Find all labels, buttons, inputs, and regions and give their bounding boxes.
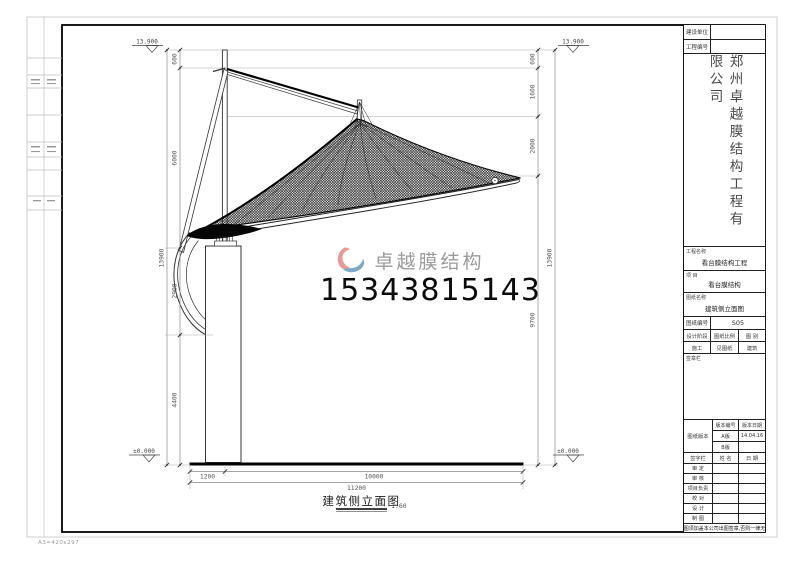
level-bottom-right: ±0.000 — [557, 448, 579, 455]
paper-size-note: A3=420x297 — [38, 540, 79, 546]
drawing-name-label: 图纸名称 — [686, 294, 706, 301]
company-name: 郑州卓越膜结构工程有限公司 — [705, 54, 745, 246]
binding-strip — [27, 17, 62, 537]
seal-label: 签章栏 — [686, 355, 701, 362]
drawing-name-cell: 图纸名称 建筑侧立面图 — [684, 293, 765, 317]
category-value: 建筑 — [739, 342, 765, 353]
version-b-date — [739, 442, 765, 452]
version-no-label: 版本编号 — [713, 420, 739, 431]
project-name-value: 看台膜结构工程 — [684, 257, 765, 267]
dim-2900: 2900 — [172, 283, 179, 298]
version-a: A版 — [713, 431, 739, 442]
drawing-no-value: S05 — [711, 317, 765, 329]
seal-cell: 签章栏 — [684, 354, 765, 420]
phone-number: 15343815143 — [320, 276, 498, 306]
name-label: 姓 名 — [713, 453, 739, 463]
level-bottom-left: ±0.000 — [133, 448, 155, 455]
brand-logo-icon — [333, 246, 369, 275]
sign-row: 审 定 — [684, 464, 765, 474]
sign-row-label: 制 图 — [684, 514, 713, 523]
version-date-label: 版本日期 — [739, 420, 765, 431]
item-value: 看台膜结构 — [684, 279, 765, 289]
sign-row-label: 审 定 — [684, 464, 713, 473]
project-name-label: 工程名称 — [686, 248, 706, 255]
level-top-right: 13.900 — [562, 39, 584, 46]
sign-table-header: 签字栏 姓 名 日 期 — [684, 453, 765, 464]
dim-11200: 11200 — [347, 485, 366, 492]
membrane-canopy — [202, 102, 521, 230]
dim-13900-right: 13900 — [547, 248, 554, 267]
sign-row-label: 设 计 — [684, 504, 713, 513]
item-label: 项 目 — [686, 272, 698, 279]
sign-row-label: 审 核 — [684, 474, 713, 483]
dim-1200: 1200 — [200, 474, 215, 481]
dim-6000: 6000 — [172, 150, 179, 165]
item-cell: 项 目 看台膜结构 — [684, 271, 765, 293]
binding-strip-marks — [31, 79, 56, 201]
scale-label: 图纸比例 — [711, 330, 739, 341]
sign-row: 审 核 — [684, 474, 765, 484]
drawing-title: 建筑侧立面图 — [323, 494, 401, 508]
project-no-label: 工程编号 — [684, 40, 711, 53]
stage-label: 设计阶段 — [684, 330, 711, 341]
drawing-sheet: 13.900 13.900 ±0.000 ±0.000 600 6000 290… — [0, 0, 800, 565]
dim-4400: 4400 — [172, 392, 179, 407]
sign-row: 校 对 — [684, 494, 765, 504]
drawing-scale: 1:60 — [391, 502, 407, 510]
version-table: 图纸版本 版本编号 版本日期 A版 14.04.16 B版 — [684, 420, 765, 453]
title-block: 建设单位 工程编号 郑州卓越膜结构工程有限公司 工程名称 看台膜结构工程 项 目… — [683, 25, 765, 532]
dim-2000: 2000 — [530, 138, 537, 153]
drawing-name-value: 建筑侧立面图 — [684, 303, 765, 313]
sign-row: 制 图 — [684, 514, 765, 524]
sign-row: 项目负责 — [684, 484, 765, 494]
category-label: 图 别 — [739, 330, 765, 341]
dim-1600: 1600 — [530, 84, 537, 99]
dim-10000: 10000 — [365, 474, 384, 481]
scale-value: 见图纸 — [711, 342, 739, 353]
dim-600-left: 600 — [172, 53, 179, 65]
dim-13900-left: 13900 — [159, 248, 166, 267]
date-label: 日 期 — [739, 453, 765, 463]
construction-unit-label: 建设单位 — [684, 25, 711, 39]
sign-row: 设 计 — [684, 504, 765, 514]
version-b: B版 — [713, 442, 739, 452]
drawing-no-label: 图纸编号 — [684, 317, 711, 329]
stage-value: 施工 — [684, 342, 711, 353]
sign-row-label: 校 对 — [684, 494, 713, 503]
level-top-left: 13.900 — [136, 39, 158, 46]
construction-unit-value — [711, 25, 765, 39]
sign-label: 签字栏 — [684, 453, 713, 463]
dim-9700: 9700 — [530, 312, 537, 327]
version-label: 图纸版本 — [684, 420, 713, 452]
watermark: 卓越膜结构 15343815143 — [320, 246, 498, 306]
dim-600-right: 600 — [530, 53, 537, 65]
sign-row-label: 项目负责 — [684, 484, 713, 493]
version-a-date: 14.04.16 — [739, 431, 765, 442]
titleblock-note: 本图须加盖本公司出图签章,否则一律无效 — [684, 524, 765, 532]
drawing-title-group: 建筑侧立面图 1:60 — [323, 494, 407, 512]
project-name-cell: 工程名称 看台膜结构工程 — [684, 247, 765, 271]
ridge-cables — [227, 69, 359, 114]
brand-name: 卓越膜结构 — [374, 247, 484, 274]
support-column — [206, 232, 242, 463]
project-no-value — [711, 40, 765, 53]
company-name-cell: 郑州卓越膜结构工程有限公司 — [684, 54, 765, 247]
